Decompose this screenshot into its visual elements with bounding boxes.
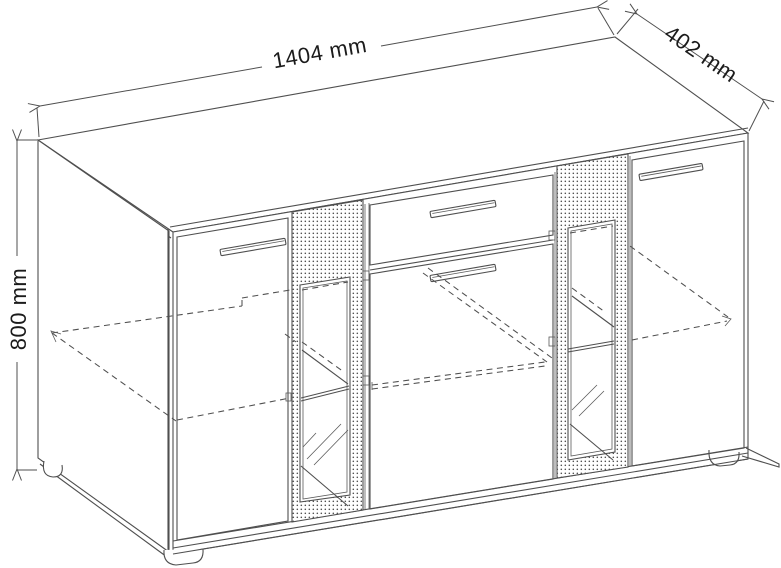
height-dimension-label: 800 mm [6, 268, 31, 350]
display-column-left [285, 200, 369, 522]
depth-dimension-label: 402 mm [660, 20, 742, 87]
glass-door-left [300, 277, 350, 502]
width-dimension-label: 1404 mm [271, 32, 369, 73]
foot-front-left [164, 549, 203, 565]
cabinet-body [38, 37, 779, 565]
furniture-dimension-diagram: 1404 mm 402 mm 800 mm [0, 0, 781, 568]
sideboard-technical-drawing: 1404 mm 402 mm 800 mm [0, 0, 781, 568]
glass-door-right [568, 220, 615, 460]
dimension-height: 800 mm [6, 140, 37, 470]
display-column-right [549, 154, 628, 478]
